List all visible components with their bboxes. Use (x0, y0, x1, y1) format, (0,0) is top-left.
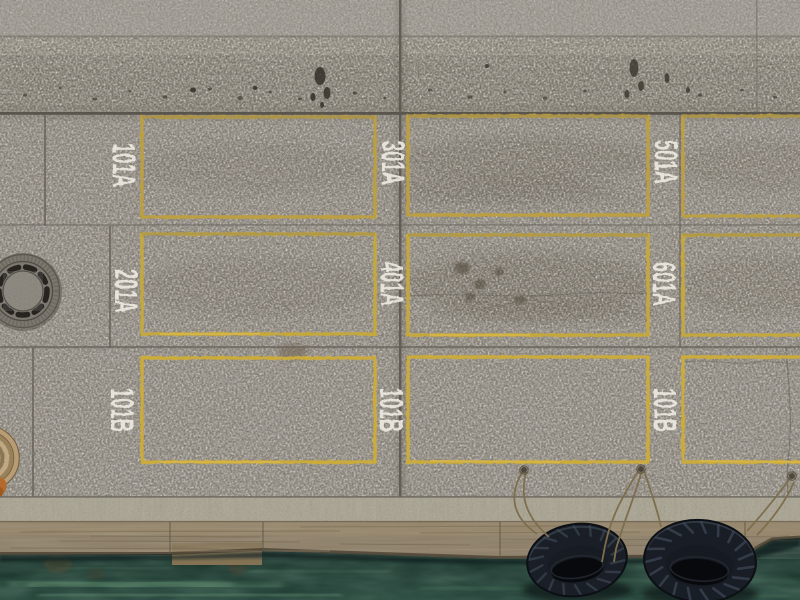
svg-text:401A: 401A (374, 262, 411, 306)
svg-text:101B: 101B (647, 388, 684, 432)
svg-text:101B: 101B (373, 388, 410, 432)
svg-text:501A: 501A (648, 140, 685, 184)
svg-text:201A: 201A (108, 269, 145, 313)
svg-text:101A: 101A (106, 143, 143, 187)
svg-text:601A: 601A (646, 262, 683, 306)
svg-text:101B: 101B (104, 388, 141, 432)
svg-text:301A: 301A (375, 141, 412, 185)
